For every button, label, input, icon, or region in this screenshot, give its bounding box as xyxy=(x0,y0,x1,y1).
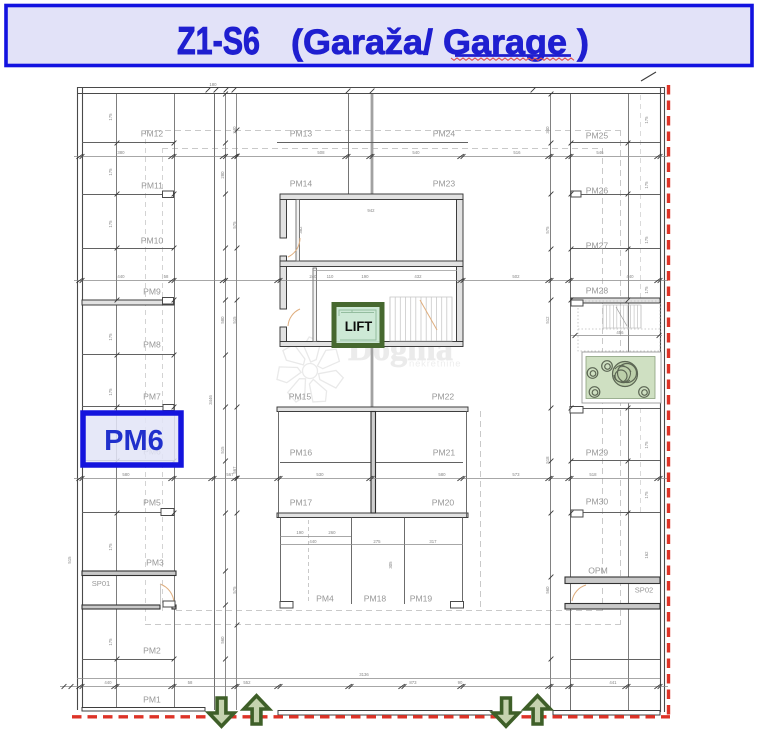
svg-text:PM24: PM24 xyxy=(433,129,456,139)
svg-text:575: 575 xyxy=(232,221,237,229)
svg-text:PM19: PM19 xyxy=(410,594,433,604)
svg-text:575: 575 xyxy=(232,586,237,594)
svg-text:110: 110 xyxy=(327,274,334,279)
svg-text:305: 305 xyxy=(388,561,393,569)
svg-text:575: 575 xyxy=(545,226,550,234)
svg-text:PM22: PM22 xyxy=(432,392,455,402)
svg-text:175: 175 xyxy=(644,441,649,449)
svg-text:PM4: PM4 xyxy=(316,594,334,604)
svg-text:530: 530 xyxy=(316,472,324,477)
svg-text:175: 175 xyxy=(644,286,649,294)
svg-text:190: 190 xyxy=(361,274,369,279)
svg-text:518: 518 xyxy=(545,456,550,464)
svg-text:560: 560 xyxy=(220,636,225,644)
svg-text:180: 180 xyxy=(209,82,217,87)
svg-text:175: 175 xyxy=(644,181,649,189)
svg-text:580: 580 xyxy=(122,472,130,477)
svg-text:175: 175 xyxy=(108,220,113,228)
svg-text:PM16: PM16 xyxy=(290,448,313,458)
svg-text:382: 382 xyxy=(298,226,303,234)
svg-text:280: 280 xyxy=(220,171,225,179)
svg-text:275: 275 xyxy=(373,539,381,544)
svg-text:PM21: PM21 xyxy=(433,448,456,458)
svg-text:PM8: PM8 xyxy=(143,340,161,350)
svg-text:175: 175 xyxy=(108,113,113,121)
svg-text:240: 240 xyxy=(309,274,317,279)
svg-text:175: 175 xyxy=(108,333,113,341)
svg-text:PM17: PM17 xyxy=(290,498,313,508)
svg-text:PM15: PM15 xyxy=(289,392,312,402)
svg-text:PM18: PM18 xyxy=(364,594,387,604)
svg-text:162: 162 xyxy=(644,551,649,559)
svg-text:260: 260 xyxy=(328,530,336,535)
svg-text:518: 518 xyxy=(589,472,597,477)
svg-text:515: 515 xyxy=(232,316,237,324)
svg-text:PM10: PM10 xyxy=(141,236,164,246)
svg-text:440: 440 xyxy=(104,680,112,685)
svg-text:515: 515 xyxy=(220,446,225,454)
svg-text:441: 441 xyxy=(609,680,617,685)
svg-text:508: 508 xyxy=(317,150,325,155)
svg-text:515: 515 xyxy=(67,556,72,564)
svg-text:58: 58 xyxy=(164,274,169,279)
svg-text:LIFT: LIFT xyxy=(345,318,373,334)
svg-text:SP02: SP02 xyxy=(635,586,654,595)
svg-text:340: 340 xyxy=(232,126,237,134)
svg-text:380: 380 xyxy=(117,150,125,155)
svg-text:PM11: PM11 xyxy=(141,181,163,191)
svg-text:432: 432 xyxy=(414,274,422,279)
svg-text:175: 175 xyxy=(644,116,649,124)
svg-text:PM5: PM5 xyxy=(143,498,161,508)
svg-text:PM29: PM29 xyxy=(586,448,609,458)
svg-text:540: 540 xyxy=(412,150,420,155)
svg-text:PM27: PM27 xyxy=(586,241,609,251)
svg-text:546: 546 xyxy=(596,150,604,155)
svg-text:516: 516 xyxy=(513,150,521,155)
svg-text:OPM: OPM xyxy=(588,566,608,576)
svg-text:PM1: PM1 xyxy=(143,695,161,705)
svg-text:567: 567 xyxy=(232,466,237,474)
svg-text:512: 512 xyxy=(545,316,550,324)
svg-text:175: 175 xyxy=(108,168,113,176)
svg-text:PM12: PM12 xyxy=(141,129,164,139)
svg-text:PM3: PM3 xyxy=(146,558,164,568)
svg-text:PM7: PM7 xyxy=(143,392,161,402)
svg-text:3136: 3136 xyxy=(359,672,369,677)
svg-text:Z1-S6: Z1-S6 xyxy=(177,20,260,63)
svg-text:456: 456 xyxy=(616,330,624,335)
svg-text:PM30: PM30 xyxy=(586,497,609,507)
svg-text:502: 502 xyxy=(512,274,520,279)
svg-text:580: 580 xyxy=(438,472,446,477)
svg-text:440: 440 xyxy=(117,274,125,279)
svg-text:PM23: PM23 xyxy=(433,179,456,189)
svg-text:PM14: PM14 xyxy=(290,179,313,189)
svg-text:58: 58 xyxy=(188,680,193,685)
svg-text:SP01: SP01 xyxy=(92,579,111,588)
svg-text:340: 340 xyxy=(545,126,550,134)
svg-text:PM6: PM6 xyxy=(104,425,164,457)
svg-text:PM26: PM26 xyxy=(586,186,609,196)
svg-text:580: 580 xyxy=(220,316,225,324)
svg-text:175: 175 xyxy=(644,491,649,499)
svg-text:PM28: PM28 xyxy=(586,286,609,296)
svg-text:190: 190 xyxy=(296,530,304,535)
svg-text:573: 573 xyxy=(512,472,520,477)
svg-text:PM13: PM13 xyxy=(290,129,313,139)
svg-text:175: 175 xyxy=(108,388,113,396)
svg-text:560: 560 xyxy=(545,586,550,594)
svg-text:175: 175 xyxy=(108,638,113,646)
svg-text:3446: 3446 xyxy=(208,395,213,405)
svg-text:nekretnine: nekretnine xyxy=(409,359,461,370)
svg-text:440: 440 xyxy=(626,274,634,279)
svg-text:942: 942 xyxy=(367,208,375,213)
svg-text:PM25: PM25 xyxy=(586,131,609,141)
svg-text:873: 873 xyxy=(409,680,417,685)
svg-text:90: 90 xyxy=(458,680,463,685)
svg-text:440: 440 xyxy=(309,539,317,544)
svg-text:317: 317 xyxy=(429,539,437,544)
svg-text:PM9: PM9 xyxy=(143,287,161,297)
svg-text:175: 175 xyxy=(108,543,113,551)
svg-text:PM20: PM20 xyxy=(432,498,455,508)
svg-text:175: 175 xyxy=(644,236,649,244)
svg-text:552: 552 xyxy=(243,680,251,685)
svg-text:PM2: PM2 xyxy=(143,646,161,656)
